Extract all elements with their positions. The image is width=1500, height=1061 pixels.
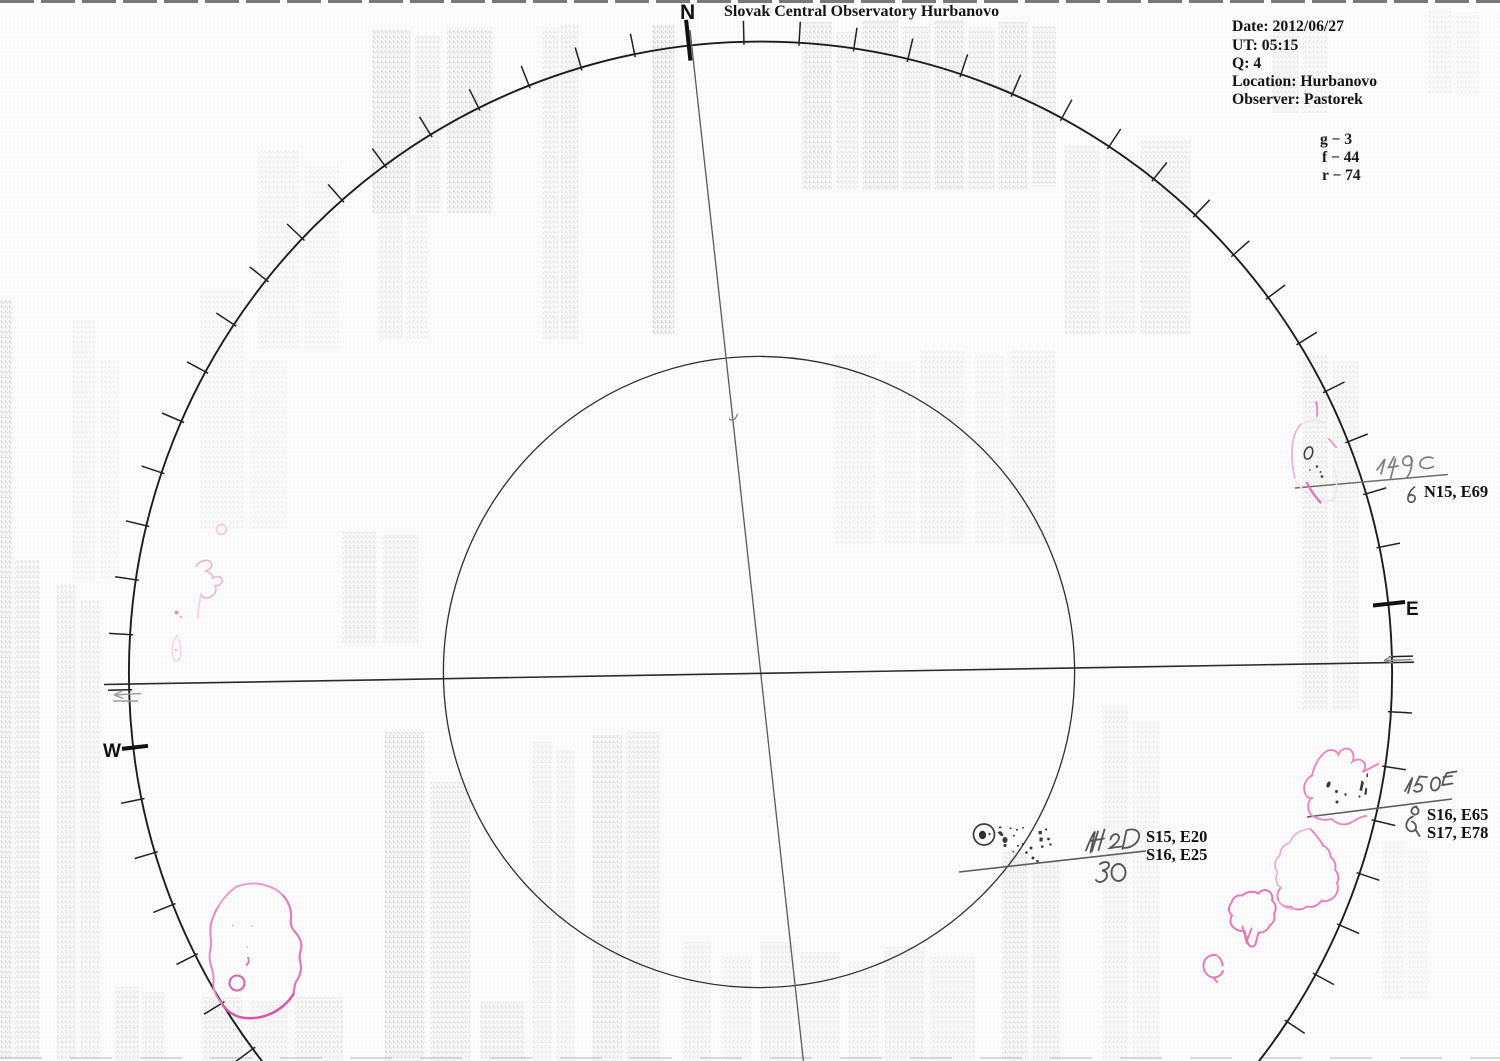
- svg-text:Location: Hurbanovo: Location: Hurbanovo: [1232, 73, 1377, 90]
- svg-text:f − 44: f − 44: [1322, 149, 1359, 166]
- svg-text:S17, E78: S17, E78: [1427, 823, 1488, 842]
- svg-text:g − 3: g − 3: [1320, 131, 1352, 148]
- svg-text:N: N: [680, 1, 695, 24]
- svg-text:S15, E20: S15, E20: [1146, 827, 1207, 846]
- svg-text:UT: 05:15: UT: 05:15: [1232, 37, 1299, 54]
- svg-text:W: W: [103, 741, 121, 762]
- svg-text:Observer: Pastorek: Observer: Pastorek: [1232, 91, 1363, 108]
- svg-text:Slovak Central Observatory Hur: Slovak Central Observatory Hurbanovo: [724, 3, 999, 20]
- svg-text:r − 74: r − 74: [1322, 167, 1361, 184]
- svg-text:S16, E25: S16, E25: [1146, 845, 1207, 864]
- svg-text:Q: 4: Q: 4: [1232, 55, 1261, 72]
- svg-text:E: E: [1406, 599, 1419, 620]
- svg-text:S16, E65: S16, E65: [1427, 805, 1488, 824]
- svg-text:N15, E69: N15, E69: [1424, 482, 1488, 501]
- svg-text:Date: 2012/06/27: Date: 2012/06/27: [1232, 18, 1344, 35]
